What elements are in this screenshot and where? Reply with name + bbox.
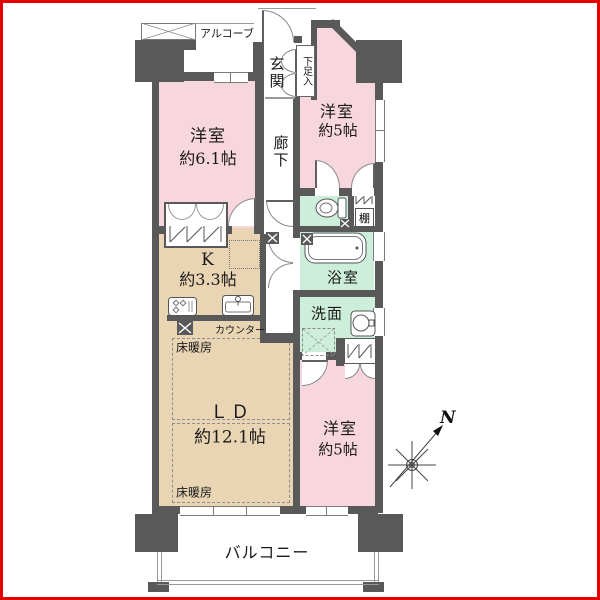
label-washroom: 洗面 [311, 303, 343, 324]
label-bathroom: 浴室 [327, 267, 359, 288]
balcony-rail [157, 580, 379, 581]
label-counter: カウンター [215, 322, 265, 337]
north-compass: N [370, 403, 465, 498]
shelf-box: 棚 [355, 208, 374, 227]
wall-left-outer [152, 72, 159, 513]
wall-bedroomnw-hall [255, 81, 264, 228]
label-bedroom-se-size: 約5帖 [318, 439, 358, 460]
wall-bath-wash [300, 290, 377, 297]
pipe-space-icon [301, 233, 313, 245]
window-ld-balcony [180, 506, 280, 516]
wall-entry-nub [294, 36, 302, 43]
entrance-step-line [265, 97, 295, 99]
shelf-lines-icon [354, 194, 374, 206]
label-bedroom-se: 洋室 [323, 415, 357, 439]
label-bedroom-ne-size: 約5帖 [318, 120, 358, 141]
entry-outline [258, 8, 316, 9]
balcony-rail [161, 552, 162, 582]
wall-ld-right [293, 343, 300, 508]
wall-sanitary-left-upper [293, 192, 300, 238]
wall-hall-bedroomne [293, 97, 300, 192]
balcony-rail [378, 552, 379, 582]
washing-machine-space [302, 328, 335, 356]
pillar-bottom-right [358, 514, 403, 552]
pipe-space-icon [266, 232, 279, 244]
label-shoe-box: 下足入 [299, 56, 314, 86]
pillar-top-left [135, 40, 184, 82]
pipe-space-icon [177, 321, 193, 335]
balcony-rail [157, 552, 158, 582]
north-label: N [439, 408, 457, 428]
refrigerator-space [229, 240, 260, 269]
bathtub-icon [304, 232, 367, 264]
wall-entrance-left [253, 42, 264, 81]
shelf-label: 棚 [359, 210, 370, 226]
washbasin-icon [350, 310, 376, 337]
folding-door-icon [346, 342, 374, 360]
meter-box-icon [141, 23, 196, 40]
window [214, 72, 248, 83]
pipe-space-icon [340, 219, 350, 228]
pillar-bottom-left [135, 514, 178, 552]
balcony-rail [374, 552, 375, 582]
kitchen-sink-icon [222, 295, 254, 316]
window [373, 232, 385, 261]
closet-bedroom-nw [164, 202, 228, 248]
stove-icon [168, 297, 197, 316]
label-floor-heating-upper: 床暖房 [176, 339, 212, 356]
label-floor-heating-lower: 床暖房 [176, 484, 212, 501]
door-fan-sanitary-lower [268, 263, 293, 288]
label-hallway: 廊下 [271, 135, 292, 169]
door-arc-hallway [266, 200, 293, 227]
wall-sanitary-left-lower [293, 290, 300, 343]
label-entrance: 玄関 [267, 56, 288, 90]
door-arc-entry [262, 10, 294, 42]
label-balcony: バルコニー [225, 539, 310, 563]
closet-bedroom-se [344, 338, 376, 364]
wall-door-nub [254, 226, 264, 234]
toilet-icon [314, 196, 348, 220]
pillar-top-right [356, 40, 402, 83]
wall-closet-stub [336, 338, 344, 366]
label-alcove: アルコーブ [200, 25, 254, 41]
label-ld-size: 約12.1帖 [194, 423, 266, 448]
label-ld: ＬＤ [210, 398, 252, 424]
label-bedroom-nw-size: 約6.1帖 [179, 145, 236, 169]
window-bedroom-balcony [306, 506, 348, 516]
door-opening [315, 188, 339, 196]
label-kitchen-size: 約3.3帖 [179, 266, 236, 290]
label-bedroom-ne: 洋室 [320, 98, 354, 122]
folding-door-icon [167, 224, 225, 244]
window [375, 100, 385, 162]
label-bedroom-nw: 洋室 [190, 122, 226, 147]
balcony-rail [157, 584, 379, 585]
floorplan: 棚 [0, 0, 600, 600]
pillar-top-left-tab [184, 40, 196, 50]
